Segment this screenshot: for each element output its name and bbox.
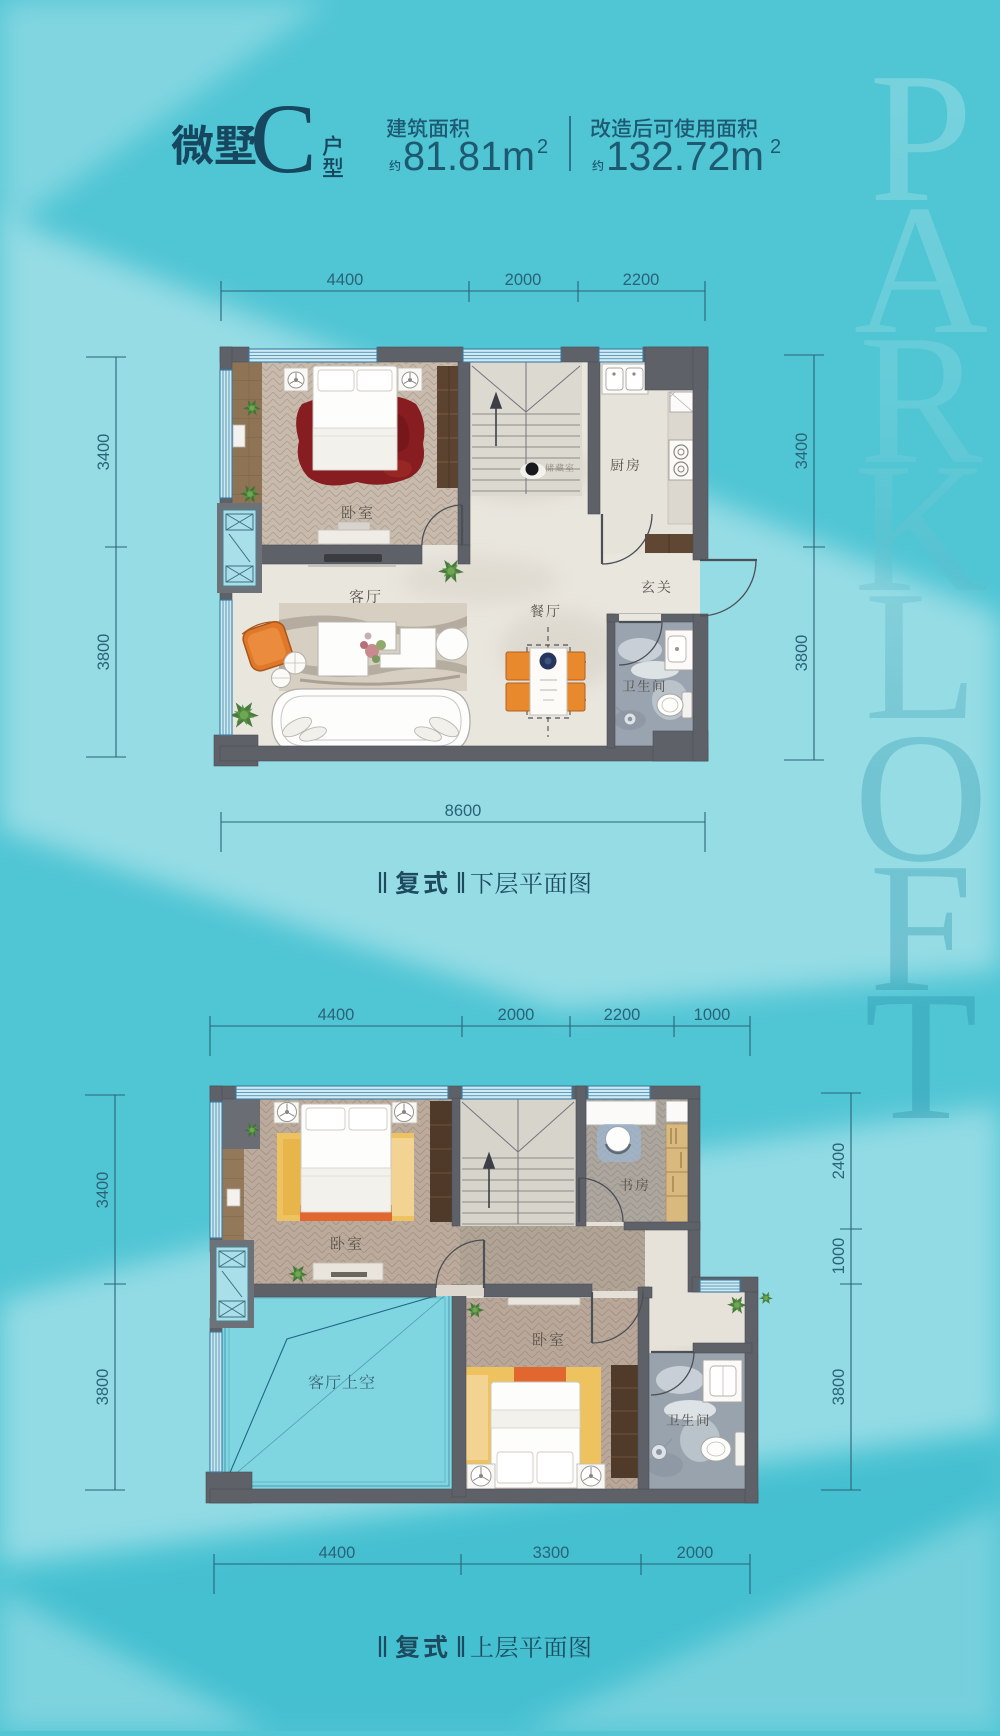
svg-text:2: 2 [537,136,548,158]
svg-text:2000: 2000 [505,271,542,289]
svg-text:3400: 3400 [95,434,113,471]
svg-text:C: C [250,83,317,194]
svg-text:81.81m: 81.81m [403,133,535,179]
svg-text:8600: 8600 [445,802,482,820]
svg-text:2200: 2200 [623,271,660,289]
svg-text:2400: 2400 [830,1143,848,1180]
svg-text:4400: 4400 [319,1544,356,1562]
svg-text:1000: 1000 [694,1006,731,1024]
svg-text:3400: 3400 [793,433,811,470]
svg-text:2200: 2200 [604,1006,641,1024]
svg-text:1000: 1000 [830,1238,848,1275]
svg-text:3400: 3400 [94,1172,112,1209]
svg-text:4400: 4400 [318,1006,355,1024]
svg-text:2000: 2000 [677,1544,714,1562]
svg-text:3300: 3300 [533,1544,570,1562]
svg-text:3800: 3800 [95,634,113,671]
svg-text:T: T [864,953,978,1159]
svg-text:3800: 3800 [793,635,811,672]
svg-text:3800: 3800 [94,1369,112,1406]
svg-text:4400: 4400 [327,271,364,289]
svg-text:132.72m: 132.72m [606,133,764,179]
svg-text:2: 2 [770,136,781,158]
svg-text:3800: 3800 [830,1369,848,1406]
svg-text:2000: 2000 [498,1006,535,1024]
